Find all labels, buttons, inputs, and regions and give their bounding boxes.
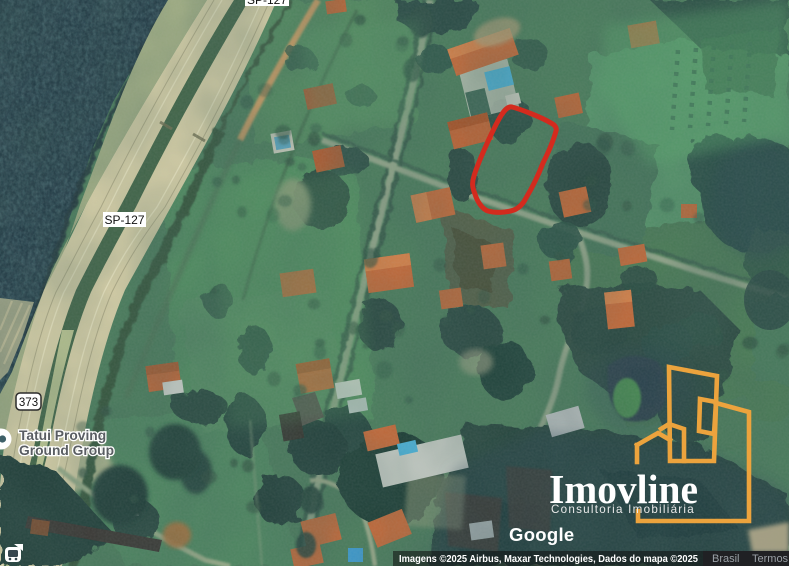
svg-text:Google: Google: [509, 524, 575, 545]
svg-text:Ground Group: Ground Group: [19, 443, 114, 458]
svg-text:Brasil: Brasil: [712, 553, 740, 565]
svg-text:SP-127: SP-127: [247, 0, 287, 7]
svg-text:373: 373: [19, 397, 38, 409]
svg-text:Consultoria Imobiliária: Consultoria Imobiliária: [551, 502, 695, 516]
svg-text:Imagens ©2025 Airbus, Maxar Te: Imagens ©2025 Airbus, Maxar Technologies…: [399, 553, 698, 565]
svg-text:Termos: Termos: [752, 553, 789, 565]
svg-text:SP-127: SP-127: [104, 213, 144, 227]
svg-text:Tatui Proving: Tatui Proving: [19, 428, 106, 443]
